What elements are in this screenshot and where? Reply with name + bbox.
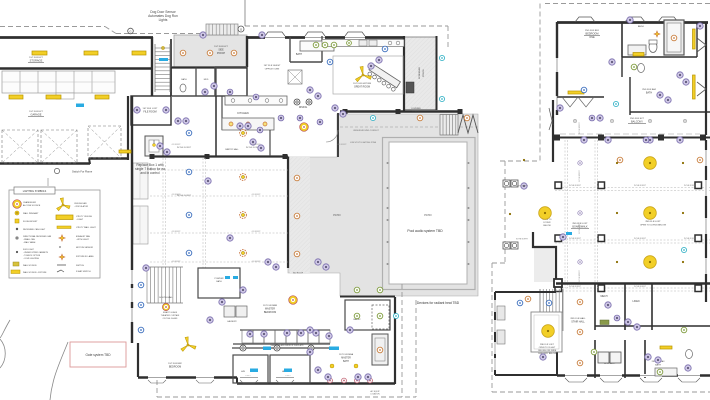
svg-text:UNDERGROUND CONDUIT: UNDERGROUND CONDUIT <box>353 130 379 132</box>
svg-text:IN THE SOFFIT: IN THE SOFFIT <box>684 238 696 240</box>
svg-text:GREAT ROOM: GREAT ROOM <box>354 86 370 89</box>
svg-text:OPEN TO 20 HGT: OPEN TO 20 HGT <box>539 347 556 349</box>
svg-text:G: G <box>129 30 131 34</box>
svg-text:BATH: BATH <box>181 78 187 81</box>
svg-text:IN THE SOFFIT: IN THE SOFFIT <box>569 238 581 240</box>
svg-text:CHANDELIER: CHANDELIER <box>23 201 36 204</box>
svg-text:IN THE SOFFIT: IN THE SOFFIT <box>569 185 581 187</box>
svg-text:GARAGE: GARAGE <box>30 113 41 117</box>
svg-text:1ST FLR MBA: 1ST FLR MBA <box>339 353 354 356</box>
svg-text:and in control: and in control <box>140 171 159 175</box>
svg-text:1ST FLR GUEST: 1ST FLR GUEST <box>264 65 282 67</box>
svg-text:IN THE SOFFIT: IN THE SOFFIT <box>516 239 528 241</box>
svg-text:LOCATION: LOCATION <box>370 393 380 396</box>
svg-text:PORCH: PORCH <box>412 111 420 113</box>
svg-text:RECESSED CAN LIGHT: RECESSED CAN LIGHT <box>23 228 46 231</box>
svg-text:NO ROOF: NO ROOF <box>293 273 304 275</box>
svg-text:WALL SCONCE: WALL SCONCE <box>23 264 37 267</box>
svg-text:FLEX LIGHT: FLEX LIGHT <box>23 249 35 251</box>
svg-text:UTILITY WALL LIGHT: UTILITY WALL LIGHT <box>76 226 96 229</box>
svg-text:PATIO: PATIO <box>424 213 431 217</box>
svg-text:BEDROOM: BEDROOM <box>169 366 181 369</box>
svg-text:POWDER: POWDER <box>215 278 225 280</box>
svg-text:- LIGHT: - LIGHT <box>76 219 84 221</box>
svg-text:Gate system TBD: Gate system TBD <box>85 353 111 357</box>
svg-text:MOTION SENSOR: MOTION SENSOR <box>76 247 94 249</box>
svg-text:CEILING OFF WIRE: CEILING OFF WIRE <box>538 350 557 352</box>
svg-text:IN THE SOFFIT: IN THE SOFFIT <box>634 238 646 240</box>
svg-text:CEILING FAN: CEILING FAN <box>74 202 87 205</box>
svg-text:Lights: Lights <box>159 18 168 22</box>
svg-text:FILE ROOM: FILE ROOM <box>143 111 156 114</box>
svg-text:FLUSH MOUNT: FLUSH MOUNT <box>23 221 38 223</box>
svg-text:PORCH: PORCH <box>217 53 226 55</box>
svg-text:SOUTH HALL: SOUTH HALL <box>159 296 174 299</box>
svg-text:H/B: H/B <box>241 371 245 373</box>
svg-text:IN THE SOFFIT: IN THE SOFFIT <box>579 170 581 181</box>
svg-text:- SMALL CAN: - SMALL CAN <box>23 238 35 241</box>
svg-text:SIDE: SIDE <box>218 50 224 52</box>
svg-text:DINING: DINING <box>299 106 308 109</box>
svg-text:BATH: BATH <box>296 53 302 56</box>
svg-text:- WITH LIGHT: - WITH LIGHT <box>76 239 90 241</box>
svg-text:BATH: BATH <box>343 360 349 363</box>
svg-text:Devices for radiant heat TBD: Devices for radiant heat TBD <box>417 301 460 305</box>
svg-text:COVERED: COVERED <box>411 108 421 110</box>
svg-text:4 IN SOFFIT: 4 IN SOFFIT <box>251 231 260 233</box>
svg-text:4 IN SOFFIT: 4 IN SOFFIT <box>171 231 180 233</box>
svg-text:IN THE SOFFIT: IN THE SOFFIT <box>579 122 581 133</box>
svg-text:4 IN SOFFIT: 4 IN SOFFIT <box>171 194 180 196</box>
svg-text:4 IN SOFFIT: 4 IN SOFFIT <box>251 261 260 263</box>
svg-text:IN THE SOFFIT: IN THE SOFFIT <box>579 270 581 281</box>
svg-text:PORCH: PORCH <box>423 69 425 77</box>
svg-text:Switch For Flame: Switch For Flame <box>72 170 93 174</box>
svg-text:PATIO: PATIO <box>333 213 340 217</box>
svg-text:4 IN SOFFIT: 4 IN SOFFIT <box>337 144 346 146</box>
svg-text:BATH: BATH <box>655 364 661 367</box>
svg-text:1ST FLR EXT: 1ST FLR EXT <box>214 46 228 48</box>
svg-text:BATH: BATH <box>646 92 652 95</box>
svg-text:2ND FLR LOFT: 2ND FLR LOFT <box>645 221 661 223</box>
svg-text:BALCONY: BALCONY <box>631 121 643 124</box>
svg-text:PANTRY HALL: PANTRY HALL <box>225 148 239 151</box>
svg-text:WALL SCONCE - FIXTURE: WALL SCONCE - FIXTURE <box>23 271 47 274</box>
svg-text:IN THE SOFFIT: IN THE SOFFIT <box>516 186 528 188</box>
svg-text:WALL PENDANT: WALL PENDANT <box>23 212 39 215</box>
svg-text:4 IN SOFFIT: 4 IN SOFFIT <box>171 261 180 263</box>
svg-text:SWITCH: SWITCH <box>76 265 84 267</box>
svg-text:2ND FLR LOFT: 2ND FLR LOFT <box>540 344 555 346</box>
svg-text:4 IN SOFFIT: 4 IN SOFFIT <box>171 144 180 146</box>
svg-text:- UNDER UPPER CABINETS: - UNDER UPPER CABINETS <box>23 251 49 254</box>
svg-text:IN THE SOFFIT: IN THE SOFFIT <box>569 286 581 288</box>
svg-text:- COVE LIGHTING: - COVE LIGHTING <box>23 258 39 260</box>
svg-text:IN THE SOFFIT: IN THE SOFFIT <box>634 286 646 288</box>
svg-text:STAIR HALL: STAIR HALL <box>571 321 585 324</box>
svg-text:MECH: MECH <box>600 295 607 298</box>
svg-text:Pool audio system TBD: Pool audio system TBD <box>407 229 443 233</box>
svg-text:THEATER CURTAIN: THEATER CURTAIN <box>161 314 180 317</box>
svg-text:4 IN SOFFIT: 4 IN SOFFIT <box>251 194 260 196</box>
svg-text:IN THE SOFFIT: IN THE SOFFIT <box>177 147 192 149</box>
svg-text:ON THE GLASS: ON THE GLASS <box>163 317 178 320</box>
svg-text:LIGHTING SYMBOLS: LIGHTING SYMBOLS <box>23 190 47 193</box>
svg-text:BATH: BATH <box>216 280 222 283</box>
svg-text:3-WAY SWITCH: 3-WAY SWITCH <box>76 270 91 273</box>
svg-text:- WALL WASH: - WALL WASH <box>23 241 36 244</box>
svg-text:KITCHEN: KITCHEN <box>237 111 249 115</box>
svg-text:SCREENED: SCREENED <box>419 67 421 80</box>
svg-text:FOYER: FOYER <box>544 222 551 224</box>
svg-text:IN THE SOFFIT: IN THE SOFFIT <box>579 222 581 233</box>
svg-text:BEDROOM: BEDROOM <box>264 311 276 314</box>
svg-text:ALCOVE SCONCE: ALCOVE SCONCE <box>23 204 41 207</box>
svg-text:- TOEKICK OPTION: - TOEKICK OPTION <box>23 255 41 257</box>
svg-text:LINEN: LINEN <box>632 300 639 303</box>
svg-text:UTILITY CEILING: UTILITY CEILING <box>76 216 92 218</box>
svg-text:FIXTURE ID LABEL: FIXTURE ID LABEL <box>76 255 95 258</box>
svg-text:BATH1: BATH1 <box>638 25 645 28</box>
svg-text:EXHAUST FAN: EXHAUST FAN <box>76 235 90 238</box>
svg-text:BELOW: BELOW <box>543 225 550 227</box>
svg-text:IN THE SOFFIT: IN THE SOFFIT <box>684 185 696 187</box>
svg-text:IN THE SOFFIT: IN THE SOFFIT <box>634 185 646 187</box>
svg-text:STORAGE: STORAGE <box>30 59 43 63</box>
svg-text:ONE: ONE <box>589 36 595 39</box>
svg-text:LAUNDRY: LAUNDRY <box>227 320 237 323</box>
svg-text:MASTER: MASTER <box>341 357 351 360</box>
svg-text:OPEN TO LIVING BELOW: OPEN TO LIVING BELOW <box>640 225 667 227</box>
svg-text:SMART GLASS: SMART GLASS <box>163 311 178 314</box>
svg-text:4 IN SOFFIT: 4 IN SOFFIT <box>251 144 260 146</box>
svg-text:LOW VOLT LIGHTING ZONE: LOW VOLT LIGHTING ZONE <box>350 142 377 144</box>
svg-text:OFFICE / DEN: OFFICE / DEN <box>265 69 280 71</box>
svg-text:MUD: MUD <box>204 79 209 81</box>
svg-text:M: M <box>59 245 61 249</box>
svg-text:DIRECTIONAL RECESSED CAN: DIRECTIONAL RECESSED CAN <box>23 235 52 238</box>
svg-text:- CIRCULATOR: - CIRCULATOR <box>74 205 89 208</box>
